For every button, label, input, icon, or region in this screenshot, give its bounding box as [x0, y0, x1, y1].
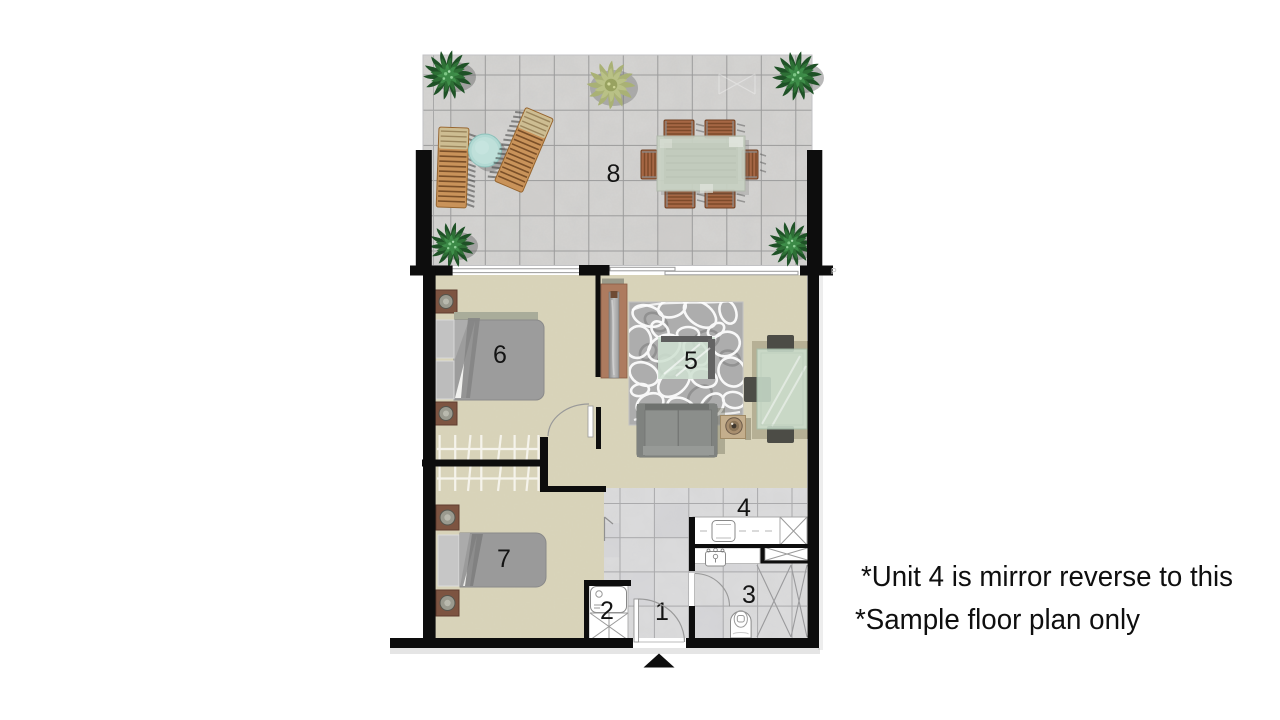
svg-text:6: 6: [493, 341, 507, 369]
svg-text:*Sample floor plan only: *Sample floor plan only: [855, 604, 1141, 636]
svg-text:8: 8: [607, 160, 621, 188]
svg-text:2: 2: [600, 597, 614, 625]
svg-text:5: 5: [684, 347, 698, 375]
svg-text:7: 7: [497, 545, 511, 573]
svg-text:4: 4: [737, 494, 751, 522]
svg-text:*Unit 4 is mirror reverse to t: *Unit 4 is mirror reverse to this: [861, 561, 1233, 593]
svg-text:3: 3: [742, 581, 756, 609]
